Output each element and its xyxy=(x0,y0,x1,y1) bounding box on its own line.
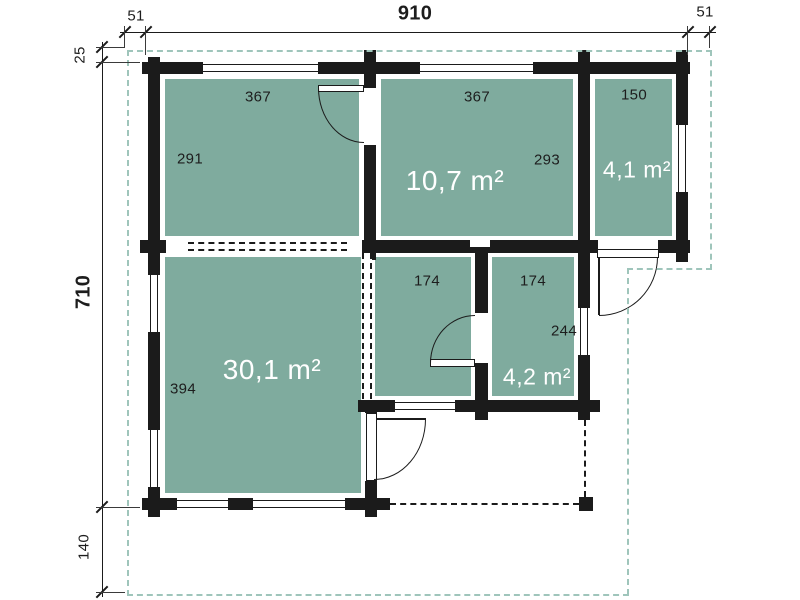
door-swing-arc xyxy=(374,419,426,480)
extension-line xyxy=(96,47,125,48)
window xyxy=(203,62,318,74)
extension-line xyxy=(687,26,688,55)
dim-label-overhang-right: 51 xyxy=(696,4,713,21)
window xyxy=(395,400,455,412)
dim-label-total-width: 910 xyxy=(398,3,432,26)
window xyxy=(676,125,688,192)
door-opening-bath xyxy=(475,313,488,363)
roof-outline-notch xyxy=(627,268,712,270)
terrace-post xyxy=(579,497,593,511)
room-area-label: 30,1 m² xyxy=(223,354,321,386)
dim-label-top-offset: 25 xyxy=(72,46,89,63)
room-width-label: 174 xyxy=(520,273,546,290)
terrace-dash-horizontal xyxy=(390,503,579,505)
extension-line xyxy=(96,507,140,508)
room-depth-label: 293 xyxy=(534,152,560,169)
wall-mid-right xyxy=(578,50,590,420)
roof-outline-top xyxy=(127,50,712,52)
room-width-label: 367 xyxy=(245,89,271,106)
room-depth-label: 291 xyxy=(177,151,203,168)
window xyxy=(148,275,160,332)
room-area-label: 4,1 m² xyxy=(603,157,671,184)
partition-dashed-horizontal xyxy=(188,242,347,251)
room-depth-label: 394 xyxy=(170,381,196,398)
extension-line xyxy=(709,26,710,48)
dimension-line-left xyxy=(102,42,103,597)
roof-outline-right-upper xyxy=(710,50,712,270)
window xyxy=(148,430,160,487)
dimension-line-top xyxy=(120,32,716,33)
window xyxy=(177,498,228,510)
dim-label-total-depth: 710 xyxy=(73,275,96,309)
extension-line xyxy=(145,26,146,55)
terrace-dash-vertical xyxy=(584,420,586,497)
extension-line xyxy=(124,26,125,48)
extension-line xyxy=(96,62,140,63)
room-area-label: 10,7 m² xyxy=(406,165,504,197)
room-width-label: 367 xyxy=(464,89,490,106)
roof-outline-bottom xyxy=(127,594,629,596)
roof-outline-right-lower xyxy=(627,268,629,595)
door-opening-top xyxy=(364,88,376,145)
window xyxy=(420,62,533,74)
room-width-label: 174 xyxy=(414,273,440,290)
room-width-label: 150 xyxy=(621,87,647,104)
partition-dashed-vertical xyxy=(362,253,372,399)
extension-line xyxy=(96,592,125,593)
dim-label-overhang-left: 51 xyxy=(127,8,144,25)
room-depth-label: 244 xyxy=(551,323,577,340)
dim-label-bottom-offset: 140 xyxy=(76,534,93,560)
roof-outline-left xyxy=(127,50,129,596)
window xyxy=(253,498,345,510)
floor-plan: 51 910 51 25 710 140 367 291 367 293 10,… xyxy=(0,0,800,600)
wall-top-partition xyxy=(364,50,376,260)
room-area-label: 4,2 m² xyxy=(503,364,571,391)
opening-notch xyxy=(470,240,490,247)
window xyxy=(578,308,590,355)
